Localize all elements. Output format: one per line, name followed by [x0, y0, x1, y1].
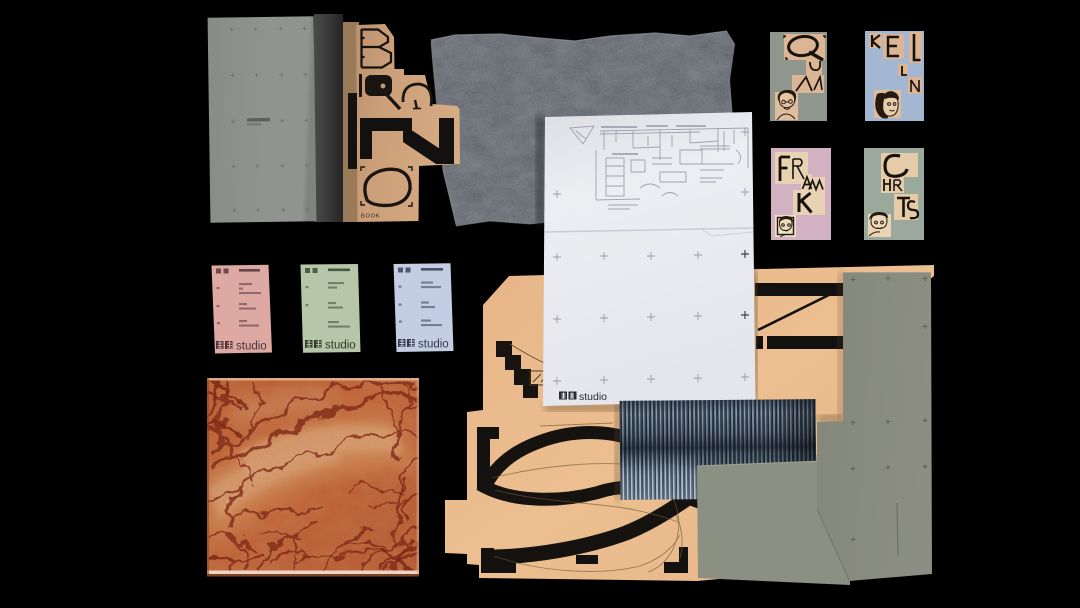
svg-text:studio: studio [325, 340, 356, 352]
svg-text:studio: studio [418, 339, 449, 351]
svg-text:studio: studio [236, 341, 267, 353]
svg-text:studio: studio [579, 391, 607, 403]
svg-text:BOOK: BOOK [361, 214, 380, 220]
